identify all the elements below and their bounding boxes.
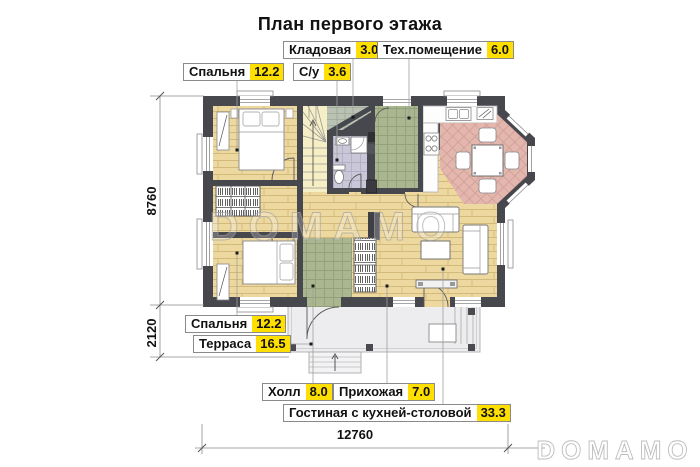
room-area-badge: 8.0 bbox=[306, 384, 332, 400]
stove bbox=[424, 133, 439, 155]
room-area-badge: 7.0 bbox=[408, 384, 434, 400]
room-area-badge: 12.2 bbox=[250, 64, 283, 80]
chair bbox=[479, 179, 496, 193]
room-name: Кладовая bbox=[284, 42, 356, 58]
room-label-storage: Кладовая3.0 bbox=[283, 41, 383, 59]
dimension-height-terrace: 2120 bbox=[144, 319, 159, 348]
pillow bbox=[262, 112, 279, 126]
room-label-bathroom: С/у3.6 bbox=[293, 63, 351, 81]
chair bbox=[479, 128, 496, 142]
terrace bbox=[288, 300, 480, 373]
room-area-badge: 6.0 bbox=[487, 42, 513, 58]
terrace-post bbox=[468, 308, 475, 315]
room-name: Гостиная с кухней-столовой bbox=[284, 405, 477, 421]
room-area-badge: 33.3 bbox=[477, 405, 510, 421]
window-sill bbox=[237, 91, 273, 96]
room-area-badge: 16.5 bbox=[256, 336, 289, 352]
window-kitchen-top bbox=[447, 96, 477, 106]
window-living-right bbox=[497, 223, 507, 265]
window-hall-bottom bbox=[393, 297, 415, 307]
room-name: Холл bbox=[263, 384, 306, 400]
room-name: Спальня bbox=[184, 64, 250, 80]
chair bbox=[505, 152, 519, 169]
window-sill bbox=[444, 91, 480, 96]
room-label-bedroom-1: Спальня12.2 bbox=[183, 63, 284, 81]
dimension-height-main: 8760 bbox=[144, 187, 159, 216]
window-sill bbox=[197, 134, 202, 174]
room-name: Спальня bbox=[186, 316, 252, 332]
room-label-tech-room: Тех.помещение6.0 bbox=[377, 41, 514, 59]
room-area-badge: 3.6 bbox=[324, 64, 350, 80]
dining-table bbox=[472, 145, 503, 176]
shower bbox=[351, 137, 367, 153]
room-name: Прихожая bbox=[334, 384, 408, 400]
pillow bbox=[243, 112, 260, 126]
boiler bbox=[367, 180, 377, 193]
pillow bbox=[280, 263, 293, 280]
window-living-bottom bbox=[455, 297, 481, 307]
chair bbox=[456, 152, 470, 169]
page-title: План первого этажа bbox=[0, 14, 700, 35]
terrace-post bbox=[366, 344, 373, 351]
nightstand bbox=[286, 109, 293, 118]
cutting-board bbox=[477, 108, 493, 120]
terrace-table bbox=[429, 324, 456, 342]
window-bedroom2-bottom bbox=[240, 297, 270, 307]
room-area-badge: 12.2 bbox=[252, 316, 285, 332]
room-name: С/у bbox=[294, 64, 324, 80]
entrance-door-opening bbox=[307, 297, 341, 307]
window-tech-top bbox=[383, 96, 411, 106]
room-label-bedroom-2: Спальня12.2 bbox=[185, 315, 286, 333]
window-bedroom1-left bbox=[203, 137, 213, 171]
window-sill bbox=[197, 219, 202, 269]
toilet-tank bbox=[333, 165, 345, 170]
room-name: Тех.помещение bbox=[378, 42, 487, 58]
window-sill bbox=[508, 220, 513, 268]
tech-room-floor bbox=[375, 106, 420, 188]
toilet-bowl bbox=[335, 171, 344, 184]
terrace-post bbox=[468, 344, 475, 351]
watermark-center: DOMAMO bbox=[210, 205, 457, 249]
room-label-living-kitchen: Гостиная с кухней-столовой33.3 bbox=[283, 404, 511, 422]
dimension-width-total: 12760 bbox=[337, 427, 373, 442]
room-name: Терраса bbox=[194, 336, 256, 352]
room-label-hall: Холл8.0 bbox=[262, 383, 333, 401]
sofa bbox=[463, 225, 488, 274]
window-bedroom1-top bbox=[240, 96, 270, 106]
stairs-floor bbox=[303, 106, 327, 192]
floor-plan-page: 8760 2120 12760 DOMAMO DOMAMO План перво… bbox=[0, 0, 700, 467]
room-label-entry: Прихожая7.0 bbox=[333, 383, 435, 401]
room-label-terrace: Терраса16.5 bbox=[193, 335, 291, 353]
watermark-corner: DOMAMO bbox=[536, 435, 693, 465]
entrance-steps bbox=[309, 352, 361, 373]
window-sill bbox=[237, 307, 273, 312]
